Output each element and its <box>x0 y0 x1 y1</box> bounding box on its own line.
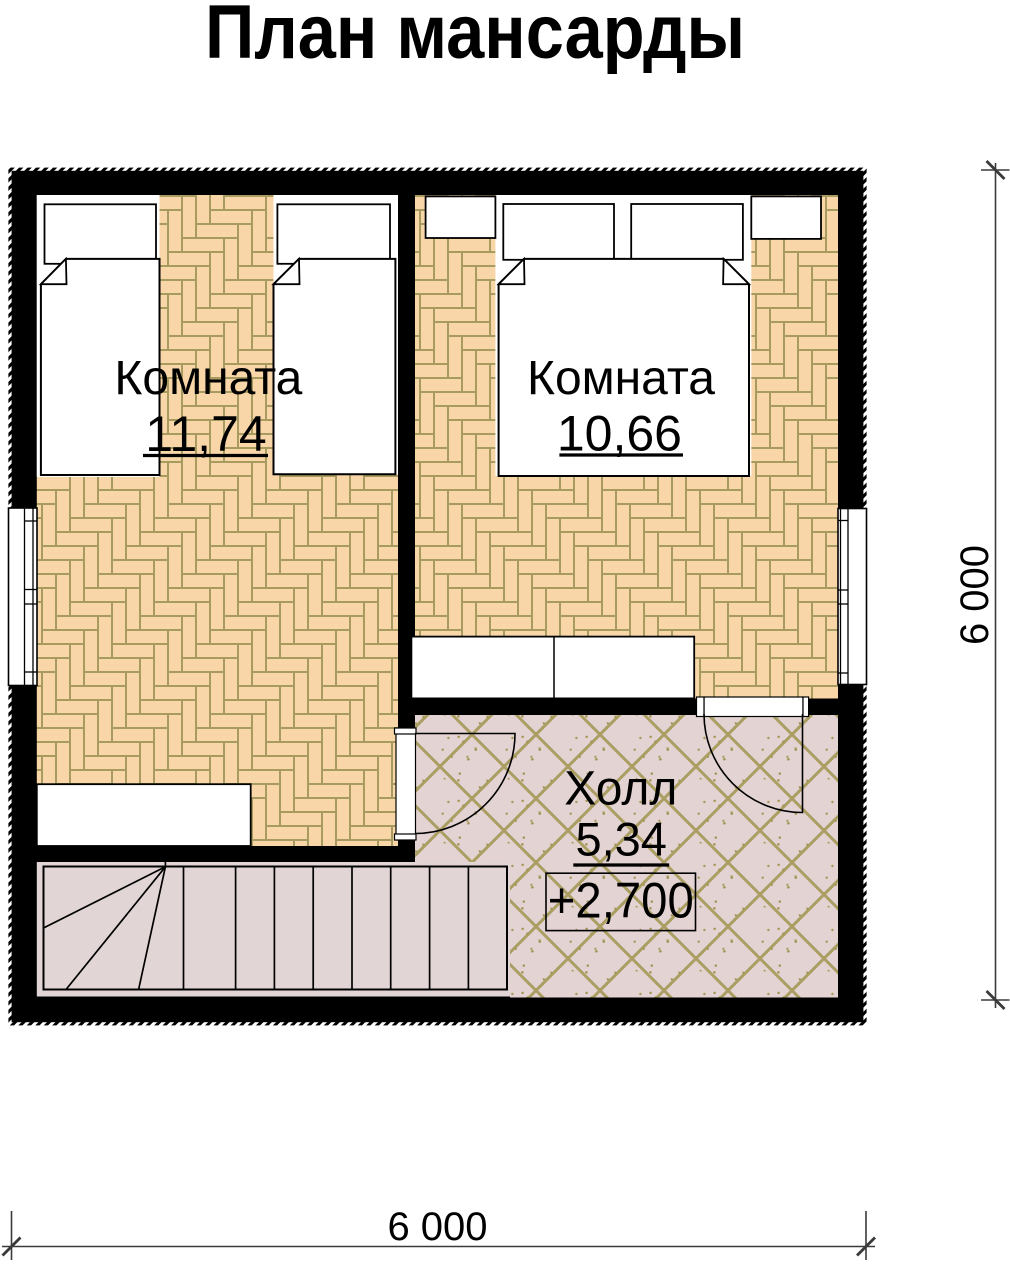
svg-text:11,74: 11,74 <box>145 406 266 462</box>
svg-text:Холл: Холл <box>564 763 677 816</box>
svg-text:План мансарды: План мансарды <box>205 0 745 75</box>
svg-text:+2,700: +2,700 <box>548 873 694 929</box>
svg-text:Комната: Комната <box>114 352 302 405</box>
svg-text:6 000: 6 000 <box>953 545 997 645</box>
svg-text:6 000: 6 000 <box>387 1205 487 1249</box>
svg-text:5,34: 5,34 <box>575 813 666 866</box>
svg-text:Комната: Комната <box>527 352 715 405</box>
svg-text:10,66: 10,66 <box>557 406 682 462</box>
